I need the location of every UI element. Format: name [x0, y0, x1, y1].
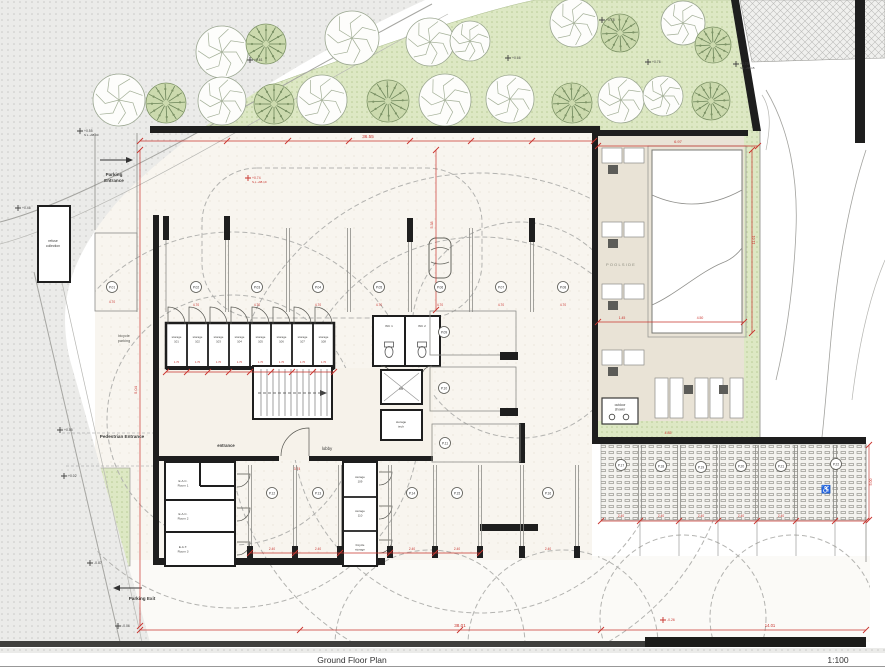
parking-space-number: P.10 — [441, 386, 448, 390]
deciduous-tree-icon — [93, 74, 145, 126]
level-value: +0.55 — [64, 428, 73, 432]
dimension-label: 2.40 — [738, 514, 744, 518]
parking-space-label: P.06 — [435, 282, 446, 293]
sun-lounger — [710, 378, 723, 418]
storage-room-label: 109 — [358, 480, 363, 484]
title-divider-strip — [0, 648, 885, 653]
lobby-label: lobby — [322, 446, 333, 451]
storage-room-label: storage — [298, 335, 308, 339]
dimension-label: 14.01 — [765, 623, 776, 628]
parking-space-label: P.02 — [191, 282, 202, 293]
storage-room-label: storage — [277, 335, 287, 339]
dimension-label: 1.70 — [174, 360, 180, 364]
level-value: -0.06 — [122, 624, 130, 628]
dimension-label: 4.85 — [665, 431, 672, 435]
wall — [159, 456, 279, 461]
south-paving — [55, 556, 870, 642]
refuse-label: refuse — [48, 239, 58, 243]
dimension-label: 2.40 — [658, 514, 664, 518]
sun-lounger — [730, 378, 743, 418]
dimension-label: 6.97 — [674, 139, 683, 144]
wall — [480, 524, 538, 531]
conifer-tree-icon — [146, 83, 186, 123]
storage-tech-label: tech — [398, 425, 404, 429]
parking-space-number: P.04 — [315, 285, 322, 289]
conifer-tree-icon — [695, 27, 731, 63]
dimension-label: 2.40 — [454, 547, 460, 551]
wall — [337, 546, 343, 558]
dimension-label: 4.70 — [254, 303, 260, 307]
dimension-label: 4.70 — [109, 300, 115, 304]
wall — [855, 0, 865, 143]
storage-room-label: storage — [319, 335, 329, 339]
dimension-label: 2.40 — [315, 547, 321, 551]
storage-room-label: storage — [355, 509, 365, 513]
parking-space-number: P.02 — [193, 285, 200, 289]
dimension-label: 4.70 — [560, 303, 566, 307]
storage-room-label: 102 — [195, 340, 200, 344]
parking-space-number: P.20 — [738, 464, 745, 468]
parking-space-label: P.03 — [252, 282, 263, 293]
sun-lounger — [602, 222, 622, 237]
parking-space-number: P.19 — [698, 465, 705, 469]
parking-space-number: P.18 — [658, 464, 665, 468]
level-value: -0.87 — [94, 561, 102, 565]
storage-room-label: 101 — [174, 340, 179, 344]
drawing-title: Ground Floor Plan — [317, 655, 387, 665]
level-value: +0.76 — [652, 60, 661, 64]
wall — [153, 215, 159, 565]
parking-entrance-label: Parking — [106, 172, 123, 177]
dimension-label: 2.40 — [778, 514, 784, 518]
plant-room-label: Room 1 — [178, 484, 189, 488]
parking-space-number: P.21 — [778, 464, 785, 468]
conifer-tree-icon — [254, 84, 294, 124]
dimension-label: 2.40 — [545, 547, 551, 551]
boundary-bar-heavy — [645, 637, 866, 647]
sun-lounger — [670, 378, 683, 418]
entrance-label: entrance — [217, 443, 235, 448]
dimension-label: 36.55 — [362, 134, 374, 139]
parking-space-label: P.17 — [616, 460, 627, 471]
parking-space-label: P.04 — [313, 282, 324, 293]
wall — [387, 546, 393, 558]
sun-lounger — [624, 284, 644, 299]
dimension-label: 5.38 — [430, 222, 434, 229]
parking-space-number: P.09 — [441, 330, 448, 334]
dimension-label: 2.40 — [618, 514, 624, 518]
conifer-tree-icon — [552, 83, 592, 123]
parking-space-label: P.09 — [439, 327, 450, 338]
deciduous-tree-icon — [550, 0, 598, 47]
wall — [163, 216, 169, 240]
dimension-label: 3.74 — [294, 467, 301, 471]
level-value: +0.02 — [68, 474, 77, 478]
storage-room-label: storage — [193, 335, 203, 339]
sun-lounger — [602, 284, 622, 299]
dimension-label: 1.70 — [321, 360, 327, 364]
storage-room-label: storage — [355, 548, 365, 552]
dimension-label: 4.70 — [498, 303, 504, 307]
parking-space-label: P.07 — [496, 282, 507, 293]
plant-room-label: E.A.T. — [179, 545, 187, 549]
wall — [407, 218, 413, 242]
storage-room-label: storage — [355, 475, 365, 479]
deciduous-tree-icon — [325, 11, 379, 65]
wall — [598, 437, 866, 444]
parking-space-label: P.08 — [558, 282, 569, 293]
deciduous-tree-icon — [196, 26, 248, 78]
wall — [292, 546, 298, 558]
parking-space-number: P.15 — [454, 491, 461, 495]
deciduous-tree-icon — [486, 75, 534, 123]
dimension-label: 1.70 — [216, 360, 222, 364]
poolside-label: POOLSIDE — [606, 262, 636, 267]
wall — [432, 546, 438, 558]
level-value: +0.78 — [606, 18, 615, 22]
dimension-label: 1.70 — [279, 360, 285, 364]
level-value: +0.66 — [512, 56, 521, 60]
dimension-label: 5.00 — [869, 479, 873, 486]
parking-space-label: P.10 — [439, 383, 450, 394]
outdoor-shower-label: outdoor — [615, 403, 627, 407]
parking-space-label: P.14 — [407, 488, 418, 499]
bicycle-parking-label: bicycle — [118, 334, 130, 338]
parking-space-number: P.12 — [269, 491, 276, 495]
sun-lounger — [602, 350, 622, 365]
storage-room-label: 110 — [358, 514, 363, 518]
wall — [519, 546, 525, 558]
lift-label: lift — [399, 387, 403, 391]
side-table — [608, 165, 618, 174]
wall — [529, 218, 535, 242]
deciduous-tree-icon — [406, 18, 454, 66]
level-value: +0.46 — [22, 206, 31, 210]
drawing-scale: 1:100 — [827, 655, 849, 665]
storage-tech-label: storage — [396, 420, 407, 424]
dimension-label: 11.01 — [752, 236, 756, 245]
storage-room-label: storage — [214, 335, 224, 339]
sun-lounger — [624, 350, 644, 365]
floor-plan-page: +0.55S.L +98.00+0.74S.L +98.19+0.78+0.76… — [0, 0, 885, 667]
pedestrian-entrance-label: Pedestrian Entrance — [100, 434, 145, 439]
refuse-label: collection — [46, 244, 60, 248]
storage-room-label: 108 — [321, 340, 326, 344]
sun-lounger — [695, 378, 708, 418]
level-value: -0.26 — [667, 618, 675, 622]
wall — [150, 126, 600, 133]
storage-room-label: storage — [172, 335, 182, 339]
parking-space-number: P.08 — [560, 285, 567, 289]
sun-lounger — [624, 222, 644, 237]
side-table — [719, 385, 728, 394]
bicycle-parking-label: parking — [118, 339, 130, 343]
deciduous-tree-icon — [198, 77, 246, 125]
sun-lounger — [624, 148, 644, 163]
parking-space-number: P.06 — [437, 285, 444, 289]
parking-space-label: P.18 — [656, 461, 667, 472]
dimension-label: 1.70 — [300, 360, 306, 364]
dimension-label: 1.45 — [619, 316, 626, 320]
accessible-icon: ♿ — [821, 484, 831, 494]
level-datum: S.L +98.00 — [84, 133, 99, 137]
sun-lounger — [602, 148, 622, 163]
pool — [652, 150, 742, 333]
dimension-label: 4.50 — [697, 316, 704, 320]
wall — [500, 408, 518, 416]
deciduous-tree-icon — [297, 75, 347, 125]
plant-room-label: Room 3 — [178, 550, 189, 554]
parking-space-number: P.05 — [376, 285, 383, 289]
parking-entrance-label: Entrance — [104, 178, 124, 183]
plant-room-label: E.A.C. — [179, 479, 188, 483]
plant-room-label: E.A.C. — [179, 512, 188, 516]
conifer-tree-icon — [367, 80, 409, 122]
parking-space-label: P.21 — [776, 461, 787, 472]
wc1-label: WC 1 — [385, 324, 393, 328]
wall — [477, 546, 483, 558]
parking-space-number: P.01 — [109, 285, 116, 289]
parking-space-label: P.20 — [736, 461, 747, 472]
side-table — [608, 239, 618, 248]
parking-space-label: P.12 — [267, 488, 278, 499]
storage-room-label: bicycle — [356, 543, 365, 547]
parking-exit-label: Parking Exit — [129, 596, 156, 601]
parking-space-number: P.03 — [254, 285, 261, 289]
dimension-label: 2.40 — [269, 547, 275, 551]
dimension-label: 38.01 — [454, 623, 466, 628]
dimension-label: 4.70 — [437, 303, 443, 307]
parking-space-number: P.16 — [545, 491, 552, 495]
parking-space-label: P.13 — [313, 488, 324, 499]
storage-room-label: 105 — [258, 340, 263, 344]
wall — [247, 546, 253, 558]
level-datum: S.L +98.19 — [252, 180, 267, 184]
deciduous-tree-icon — [419, 74, 471, 126]
storage-room-label: storage — [235, 335, 245, 339]
parking-space-label: P.05 — [374, 282, 385, 293]
outdoor-shower-label: shower — [615, 408, 626, 412]
dimension-label: 4.70 — [376, 303, 382, 307]
side-table — [608, 367, 618, 376]
level-value: +0.61 — [254, 58, 263, 62]
level-datum: S.L +98.15 — [740, 66, 755, 70]
wall — [598, 130, 748, 136]
conifer-tree-icon — [246, 24, 286, 64]
dimension-label: 4.70 — [315, 303, 321, 307]
parking-space-label: P.11 — [440, 438, 451, 449]
parking-space-number: P.17 — [618, 463, 625, 467]
parking-space-label: P.19 — [696, 462, 707, 473]
sun-lounger — [655, 378, 668, 418]
wall — [574, 546, 580, 558]
dimension-label: 1.70 — [237, 360, 243, 364]
parking-space-label: P.01 — [107, 282, 118, 293]
dimension-label: 4.70 — [193, 303, 199, 307]
floor-plan-canvas: +0.55S.L +98.00+0.74S.L +98.19+0.78+0.76… — [0, 0, 885, 667]
dimension-label: 1.70 — [258, 360, 264, 364]
storage-room-label: 107 — [300, 340, 305, 344]
wall — [592, 133, 598, 444]
wall — [309, 456, 433, 461]
parking-space-number: P.13 — [315, 491, 322, 495]
storage-room-label: 104 — [237, 340, 242, 344]
deciduous-tree-icon — [643, 76, 683, 116]
dimension-label: 2.40 — [698, 514, 704, 518]
dimension-label: 2.40 — [409, 547, 415, 551]
parking-space-label: P.16 — [543, 488, 554, 499]
dimension-label: 5.04 — [133, 385, 138, 394]
parking-space-number: P.11 — [442, 441, 448, 445]
parking-space-number: P.07 — [498, 285, 505, 289]
parking-space-label: P.22 — [831, 459, 842, 470]
storage-room-label: storage — [256, 335, 266, 339]
wall — [500, 352, 518, 360]
storage-room-label: 106 — [279, 340, 284, 344]
storage-room-label: 103 — [216, 340, 221, 344]
wall — [224, 216, 230, 240]
parking-space-label: P.15 — [452, 488, 463, 499]
side-table — [608, 301, 618, 310]
wc2-label: WC 2 — [418, 324, 426, 328]
dimension-label: 1.70 — [195, 360, 201, 364]
parking-space-number: P.14 — [409, 491, 416, 495]
deciduous-tree-icon — [598, 77, 644, 123]
deciduous-tree-icon — [450, 21, 490, 61]
plant-room-label: Room 2 — [178, 517, 189, 521]
parking-space-number: P.22 — [833, 462, 840, 466]
side-table — [684, 385, 693, 394]
conifer-tree-icon — [692, 82, 730, 120]
outdoor-parking-pavers — [601, 444, 866, 520]
